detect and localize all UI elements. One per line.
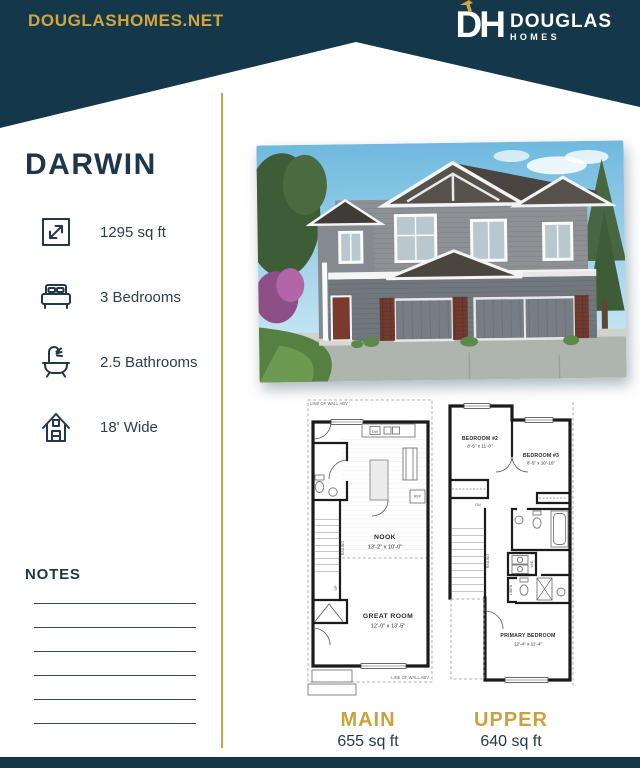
label-up: UP — [334, 585, 338, 591]
floorplan-upper: DN RAILING W/D LINEN BEDROOM #2 8'-5" x … — [444, 396, 580, 712]
notes-line — [34, 604, 196, 628]
room-name-primary: PRIMARY BEDROOM — [500, 633, 555, 639]
notes-lines — [34, 580, 196, 724]
hammer-icon — [459, 0, 481, 12]
floorplan-upper-area: 640 sq ft — [436, 733, 586, 751]
room-name-great-room: GREAT ROOM — [363, 613, 413, 620]
spec-label: 1295 sq ft — [100, 224, 166, 241]
house-width-icon — [36, 407, 76, 447]
spec-label: 18' Wide — [100, 419, 158, 436]
room-dims-great-room: 12'-0" x 13'-5" — [371, 624, 405, 630]
label-railing: RAILING — [341, 541, 345, 556]
label-railing-upper: RAILING — [486, 554, 490, 569]
notes-line — [34, 628, 196, 652]
floorplan-upper-label: UPPER — [436, 709, 586, 732]
area-expand-icon — [36, 212, 76, 252]
spec-item-width: 18' Wide — [36, 407, 198, 447]
room-dims-bedroom2: 8'-5" x 11'-0" — [467, 444, 493, 449]
notes-line — [34, 700, 196, 724]
label-dw: DW — [372, 430, 379, 434]
house-illustration — [256, 140, 626, 382]
notes-line — [34, 652, 196, 676]
footer-bar — [0, 757, 640, 768]
logo-monogram-wrap: DH — [456, 6, 503, 43]
annotation-line-of-wall-top: LINE OF WALL ABV — [310, 401, 348, 406]
label-dn: DN — [475, 503, 481, 507]
floorplan-main-label: MAIN — [296, 709, 440, 732]
website-url: DOUGLASHOMES.NET — [28, 11, 224, 31]
label-ref: REF — [414, 495, 422, 499]
room-name-bedroom3: BEDROOM #3 — [523, 453, 559, 459]
room-dims-bedroom3: 8'-5" x 10'-10" — [527, 461, 556, 466]
house-rendering — [256, 140, 626, 382]
label-linen: LINEN — [509, 584, 513, 595]
spec-item-area: 1295 sq ft — [36, 212, 198, 252]
brand-logo: DH DOUGLAS HOMES — [456, 6, 612, 43]
spec-label: 3 Bedrooms — [100, 289, 181, 306]
plan-title: DARWIN — [25, 148, 157, 182]
logo-name: DOUGLAS — [510, 12, 612, 31]
floorplan-main: LINE OF WALL ABV DW REF RAILING UP — [296, 396, 440, 712]
notes-line — [34, 676, 196, 700]
spec-item-bathrooms: 2.5 Bathrooms — [36, 342, 198, 382]
notes-line — [34, 580, 196, 604]
spec-list: 1295 sq ft 3 Bedrooms 2.5 Bathrooms — [36, 212, 198, 447]
bathtub-icon — [36, 342, 76, 382]
room-dims-primary: 12'-4" x 11'-4" — [514, 642, 542, 647]
spec-item-bedrooms: 3 Bedrooms — [36, 277, 198, 317]
annotation-line-of-wall-bottom: LINE OF WALL ABV — [391, 675, 429, 680]
room-name-nook: NOOK — [374, 534, 396, 541]
room-name-bedroom2: BEDROOM #2 — [462, 436, 498, 442]
bed-icon — [36, 277, 76, 317]
spec-label: 2.5 Bathrooms — [100, 354, 198, 371]
flyer-page: DOUGLASHOMES.NET DH DOUGLAS HOMES DARWIN… — [0, 0, 640, 768]
room-dims-nook: 13'-2" x 10'-0" — [368, 545, 402, 551]
divider-gold-line — [221, 93, 223, 748]
floorplan-main-area: 655 sq ft — [296, 733, 440, 751]
logo-sub: HOMES — [510, 33, 612, 42]
logo-text: DOUGLAS HOMES — [510, 12, 612, 42]
label-wd: W/D — [530, 560, 534, 567]
